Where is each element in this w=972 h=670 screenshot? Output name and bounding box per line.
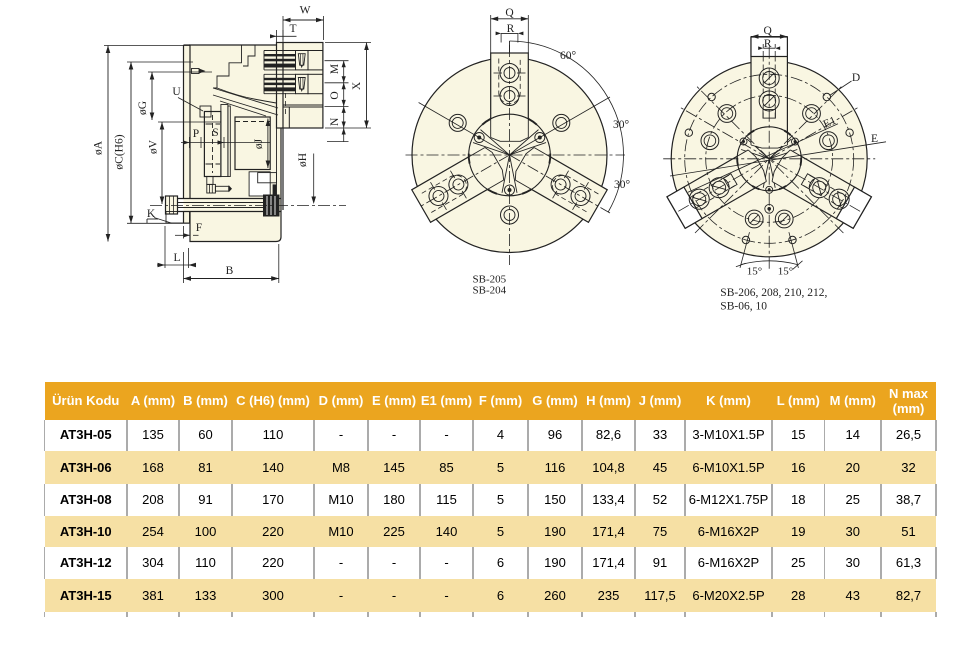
svg-text:øC(H6): øC(H6) xyxy=(114,134,126,169)
svg-text:U: U xyxy=(172,86,181,98)
svg-text:L: L xyxy=(173,252,180,264)
svg-text:O: O xyxy=(329,91,341,99)
svg-text:60°: 60° xyxy=(560,50,577,62)
svg-text:R: R xyxy=(764,38,772,50)
svg-text:30°: 30° xyxy=(614,179,631,191)
svg-text:P: P xyxy=(193,128,199,140)
svg-text:E: E xyxy=(871,133,878,145)
svg-text:W: W xyxy=(300,5,311,17)
svg-text:SB-204: SB-204 xyxy=(473,285,507,297)
svg-text:øA: øA xyxy=(93,140,105,155)
svg-text:T: T xyxy=(289,23,296,35)
svg-text:øH: øH xyxy=(297,153,309,167)
svg-text:S: S xyxy=(212,127,218,139)
svg-text:øJ: øJ xyxy=(253,138,265,149)
svg-text:SB-206, 208, 210, 212,: SB-206, 208, 210, 212, xyxy=(720,287,827,299)
svg-text:15°: 15° xyxy=(747,266,762,278)
svg-text:SB-06, 10: SB-06, 10 xyxy=(720,301,767,313)
svg-text:Q: Q xyxy=(505,7,514,19)
svg-text:M: M xyxy=(329,64,341,74)
svg-text:D: D xyxy=(852,72,860,84)
svg-text:øV: øV xyxy=(148,139,160,154)
svg-text:Q: Q xyxy=(764,25,773,37)
svg-text:F: F xyxy=(196,222,202,234)
svg-text:B: B xyxy=(226,265,234,277)
svg-text:øG: øG xyxy=(137,101,149,115)
svg-text:15°: 15° xyxy=(778,266,793,278)
svg-text:X: X xyxy=(351,81,363,90)
svg-text:N: N xyxy=(329,117,341,126)
svg-text:30°: 30° xyxy=(613,119,630,131)
svg-text:K: K xyxy=(147,208,156,220)
svg-text:R: R xyxy=(507,23,515,35)
